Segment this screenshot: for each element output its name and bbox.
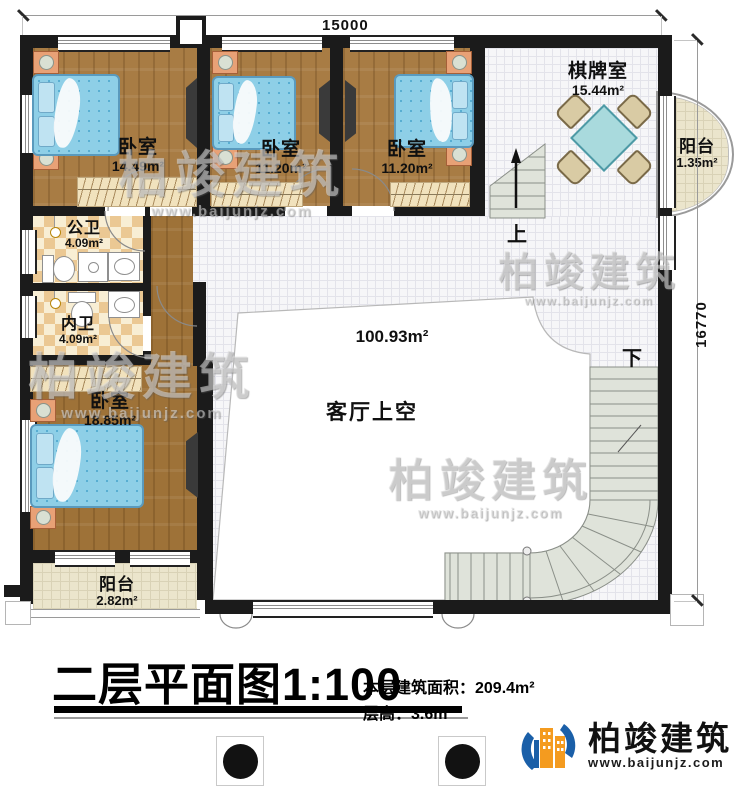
label-bedroom4: 卧室 18.85m² (84, 392, 136, 428)
plant-icon (452, 55, 467, 70)
closet-bedroom4 (30, 366, 142, 392)
sink-basin (114, 297, 135, 313)
room-area: 11.20m² (381, 161, 432, 176)
label-void-name: 客厅上空 (326, 396, 418, 426)
column-footing-right (670, 594, 704, 626)
closet-bedroom1 (77, 177, 197, 207)
column-dot (445, 744, 480, 779)
toilet-bowl (53, 256, 75, 282)
vestibule-floor (151, 216, 193, 366)
room-area: 15.44m² (568, 83, 628, 98)
pillow (218, 83, 234, 111)
room-name: 棋牌室 (568, 62, 628, 83)
tv-bedroom1 (186, 78, 197, 148)
ceiling-lamp (50, 227, 61, 238)
label-void-area: 100.93m² (356, 327, 429, 347)
brand-name: 柏竣建筑 (588, 722, 732, 755)
label-bedroom2: 卧室 11.20m² (255, 140, 306, 176)
plan-title: 二层平面图1:100 (52, 648, 402, 713)
window-bedroom4-balcony-2 (130, 550, 190, 567)
bottom-balcony-railing (30, 609, 200, 618)
bed-sheet (51, 77, 82, 149)
wall-bedroom4-right (197, 360, 213, 600)
sink-counter (108, 252, 140, 281)
room-name: 卧室 (112, 138, 164, 159)
room-name: 卧室 (255, 140, 306, 161)
wall-bath-bedroom4 (20, 355, 151, 365)
tv-bedroom3 (345, 80, 356, 142)
door-gap-bedroom2 (285, 206, 327, 216)
pillow (36, 467, 54, 499)
nightstand (33, 51, 59, 74)
brand-logo-block: 柏竣建筑 www.baijunjz.com (520, 714, 732, 778)
bed-bedroom4 (30, 424, 144, 508)
pillow (452, 81, 468, 109)
balcony-door-right (658, 96, 676, 208)
window-right-hall (658, 216, 676, 270)
dimension-line-top (22, 15, 662, 16)
door-gap-bedroom3 (352, 206, 394, 216)
plant-icon (218, 150, 233, 165)
room-name: 公卫 (65, 220, 103, 237)
plant-icon (452, 147, 467, 162)
window-left-public-bath (20, 230, 37, 274)
closet-bedroom3 (390, 182, 470, 207)
ceiling-lamp (50, 298, 61, 309)
room-name: 卧室 (381, 140, 432, 161)
dimension-right-value: 16770 (693, 301, 710, 348)
shower (78, 252, 108, 282)
building-area-text: 本层建筑面积：209.4m² (363, 674, 535, 698)
dimension-top-value: 15000 (322, 17, 369, 34)
wall-corridor (20, 206, 485, 216)
floor-height-text: 层高：3.6m (363, 700, 447, 724)
tv-bedroom2 (319, 80, 330, 142)
label-chess-room: 棋牌室 15.44m² (568, 62, 628, 98)
pillow (36, 433, 54, 465)
pillow (38, 116, 55, 147)
window-bottom-hall (253, 600, 433, 618)
label-stairs-down: 下 (622, 342, 642, 371)
tv-bedroom4 (186, 432, 198, 498)
column-footing-left (5, 601, 31, 625)
room-area: 14.49m² (112, 159, 164, 174)
room-name: 内卫 (59, 316, 97, 333)
label-balcony-bottom: 阳台 2.82m² (96, 576, 137, 608)
room-name: 卧室 (84, 392, 136, 413)
extension-line (661, 16, 662, 35)
door-gap-bedroom1 (150, 206, 192, 216)
pillow (452, 112, 468, 140)
room-area: 4.09m² (59, 333, 97, 346)
brand-website: www.baijunjz.com (588, 755, 732, 770)
chimney (176, 16, 206, 48)
wall-vestibule (193, 282, 206, 366)
pillow (38, 82, 55, 113)
nightstand (446, 51, 472, 74)
extension-line (22, 16, 23, 35)
door-gap-public-bath (105, 206, 145, 216)
wall-bath-right-1 (143, 216, 151, 288)
label-stairs-up: 上 (507, 218, 527, 247)
window-bedroom4-balcony-1 (55, 550, 115, 567)
plant-icon (36, 510, 51, 525)
room-name: 阳台 (96, 576, 137, 594)
window-top-bedroom2 (222, 35, 322, 52)
bed-bedroom1 (32, 74, 120, 156)
plant-icon (36, 403, 51, 418)
sink-basin (114, 258, 135, 275)
label-public-bath: 公卫 4.09m² (65, 220, 103, 250)
pillow (218, 114, 234, 142)
bed-sheet (231, 79, 260, 145)
shower-drain (88, 262, 99, 273)
label-inner-bath: 内卫 4.09m² (59, 316, 97, 346)
room-area: 4.09m² (65, 237, 103, 250)
nightstand (30, 399, 56, 422)
wall-bed1-bed2 (197, 48, 210, 208)
wall-bath-right-3 (143, 351, 151, 365)
extension-line (674, 601, 697, 602)
room-area: 18.85m² (84, 413, 136, 428)
column-symbol (216, 736, 264, 786)
closet-bedroom2 (211, 182, 303, 207)
plant-icon (218, 55, 233, 70)
plant-icon (39, 55, 54, 70)
bed-sheet (50, 427, 84, 503)
column-symbol (438, 736, 486, 786)
window-left-inner-bath (20, 296, 37, 338)
window-top-bedroom1 (58, 35, 170, 52)
floor-plan-page: 卧室 14.49m² 卧室 11.20m² 卧室 11.20m² 棋牌室 15.… (0, 0, 750, 789)
bed-sheet (427, 77, 456, 143)
wall-bath-right-2 (143, 286, 151, 316)
wall-bed2-bed3 (330, 48, 343, 208)
window-top-bedroom3 (350, 35, 454, 52)
room-area: 11.20m² (255, 161, 306, 176)
label-bedroom1: 卧室 14.49m² (112, 138, 164, 174)
brand-logo-icon (520, 714, 580, 778)
nightstand (30, 506, 56, 529)
label-bedroom3: 卧室 11.20m² (381, 140, 432, 176)
extension-line (674, 40, 697, 41)
nightstand (212, 51, 238, 74)
room-area: 2.82m² (96, 594, 137, 608)
bed-bedroom3 (394, 74, 474, 148)
column-dot (223, 744, 258, 779)
sink-counter (108, 291, 140, 318)
wall-bath-divider (20, 283, 151, 291)
